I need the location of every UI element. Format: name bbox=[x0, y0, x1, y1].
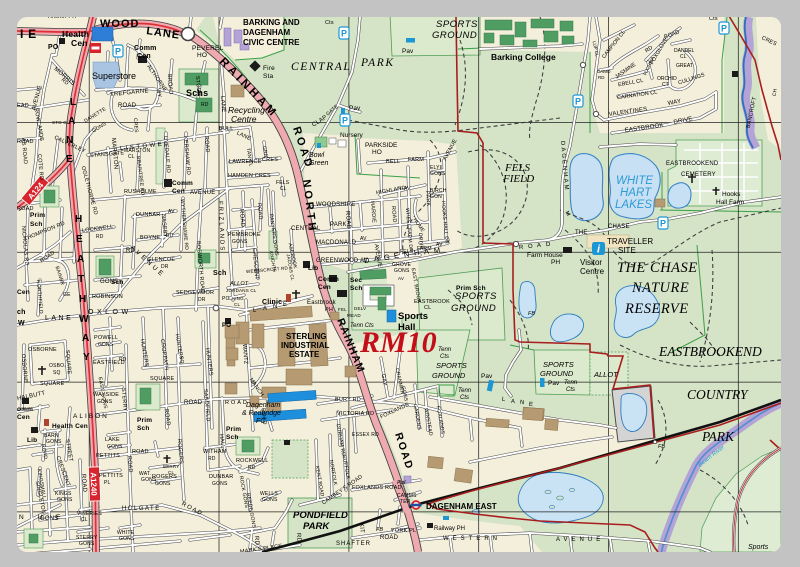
svg-text:DR: DR bbox=[198, 297, 206, 303]
svg-text:GONS: GONS bbox=[79, 541, 95, 547]
svg-text:A: A bbox=[77, 254, 84, 265]
svg-text:A1240: A1240 bbox=[89, 472, 99, 496]
svg-text:P: P bbox=[115, 47, 121, 57]
svg-text:GONS: GONS bbox=[46, 439, 62, 445]
svg-text:Hall Farm: Hall Farm bbox=[716, 199, 744, 206]
svg-text:GREAT: GREAT bbox=[676, 63, 693, 69]
svg-text:HO: HO bbox=[372, 149, 382, 156]
svg-text:CL: CL bbox=[424, 305, 431, 311]
svg-text:MACDONALD: MACDONALD bbox=[316, 240, 357, 246]
svg-text:MEAD: MEAD bbox=[347, 313, 361, 318]
svg-text:CENTRAL: CENTRAL bbox=[291, 226, 321, 232]
svg-text:TRAVELLER: TRAVELLER bbox=[607, 237, 653, 246]
svg-text:SITE: SITE bbox=[618, 246, 636, 255]
svg-text:Y: Y bbox=[83, 352, 90, 363]
svg-text:CAMO: CAMO bbox=[597, 69, 611, 74]
svg-text:LAWRENCE: LAWRENCE bbox=[229, 159, 262, 165]
svg-text:GONS: GONS bbox=[100, 279, 118, 285]
svg-text:RD: RD bbox=[166, 233, 174, 239]
svg-text:PARK: PARK bbox=[360, 57, 395, 69]
svg-text:EAD: EAD bbox=[17, 103, 29, 109]
svg-text:GROUND: GROUND bbox=[432, 371, 466, 380]
svg-text:BURY RD: BURY RD bbox=[335, 397, 361, 403]
svg-text:SQUARE: SQUARE bbox=[150, 376, 175, 382]
svg-text:T: T bbox=[78, 274, 84, 285]
svg-text:WHITE: WHITE bbox=[616, 175, 653, 187]
svg-text:VICTORIA RD: VICTORIA RD bbox=[337, 411, 374, 417]
svg-text:Nursery: Nursery bbox=[340, 132, 364, 139]
svg-text:P: P bbox=[341, 29, 347, 39]
svg-text:RD: RD bbox=[248, 465, 256, 471]
svg-text:Lib: Lib bbox=[27, 437, 37, 444]
svg-text:Tenn Cts: Tenn Cts bbox=[350, 323, 374, 329]
svg-text:PO: PO bbox=[222, 323, 231, 329]
svg-text:E: E bbox=[76, 234, 83, 245]
svg-text:AV: AV bbox=[168, 209, 175, 215]
svg-text:SEDGEMOOR: SEDGEMOOR bbox=[176, 290, 214, 296]
svg-text:Pav: Pav bbox=[548, 380, 560, 387]
svg-text:NATURE: NATURE bbox=[631, 280, 689, 296]
svg-text:Centre: Centre bbox=[580, 267, 605, 276]
svg-text:DR: DR bbox=[161, 264, 169, 270]
svg-text:RUSHOLME: RUSHOLME bbox=[124, 189, 157, 195]
svg-text:O: O bbox=[528, 244, 534, 250]
svg-text:BELL: BELL bbox=[386, 159, 400, 165]
svg-text:PEMBROKE: PEMBROKE bbox=[228, 232, 261, 238]
svg-text:CL: CL bbox=[280, 186, 287, 192]
svg-text:LAKES: LAKES bbox=[615, 199, 652, 211]
svg-text:Clinic: Clinic bbox=[262, 299, 282, 306]
svg-text:BULL: BULL bbox=[219, 126, 234, 132]
svg-text:Pol: Pol bbox=[397, 480, 406, 486]
svg-text:HAMDEN CRES: HAMDEN CRES bbox=[228, 173, 271, 179]
svg-text:ESTATE: ESTATE bbox=[289, 350, 320, 359]
svg-text:omm: omm bbox=[17, 406, 33, 413]
svg-text:RD: RD bbox=[253, 536, 260, 546]
svg-text:ROAD: ROAD bbox=[380, 535, 399, 541]
svg-text:Sta: Sta bbox=[263, 73, 274, 80]
svg-text:PO: PO bbox=[48, 44, 59, 51]
svg-text:Pav: Pav bbox=[481, 373, 493, 380]
svg-text:AV: AV bbox=[404, 186, 411, 192]
svg-text:GONS: GONS bbox=[155, 481, 171, 487]
svg-text:GONS: GONS bbox=[107, 444, 123, 450]
svg-text:RD: RD bbox=[295, 533, 302, 543]
svg-text:Sch: Sch bbox=[213, 270, 226, 277]
svg-text:GON: GON bbox=[430, 194, 442, 200]
svg-text:GE: GE bbox=[63, 292, 71, 298]
svg-text:Superstore: Superstore bbox=[92, 71, 136, 81]
svg-text:A: A bbox=[82, 333, 89, 344]
svg-text:Tenn: Tenn bbox=[438, 347, 452, 353]
svg-text:GDNS: GDNS bbox=[97, 399, 113, 405]
svg-text:PH: PH bbox=[325, 307, 333, 313]
svg-text:KING: KING bbox=[232, 296, 244, 301]
svg-text:P: P bbox=[575, 97, 581, 107]
svg-text:WITHAM: WITHAM bbox=[203, 449, 227, 455]
svg-text:GROUND: GROUND bbox=[432, 30, 477, 41]
svg-text:THE: THE bbox=[575, 230, 588, 236]
svg-text:COUNTRY: COUNTRY bbox=[687, 387, 749, 402]
svg-text:ROAD: ROAD bbox=[132, 449, 149, 455]
svg-text:PONDFIELD: PONDFIELD bbox=[293, 510, 348, 521]
svg-text:FARM: FARM bbox=[408, 157, 424, 163]
svg-text:Comm: Comm bbox=[318, 276, 339, 283]
svg-text:DUNBAR: DUNBAR bbox=[209, 474, 233, 480]
svg-text:ESSEX RD: ESSEX RD bbox=[352, 432, 379, 438]
svg-text:Visitor: Visitor bbox=[580, 258, 602, 267]
svg-text:A: A bbox=[537, 243, 542, 249]
svg-text:PETTITS: PETTITS bbox=[96, 453, 120, 459]
svg-text:Sch: Sch bbox=[226, 434, 239, 441]
svg-text:OSBO.: OSBO. bbox=[49, 363, 66, 369]
svg-text:Hooks: Hooks bbox=[722, 191, 741, 198]
svg-text:Cts: Cts bbox=[460, 395, 469, 401]
svg-text:WOODSHIRE: WOODSHIRE bbox=[316, 202, 355, 208]
svg-text:ch: ch bbox=[17, 309, 26, 316]
svg-text:DELV: DELV bbox=[354, 306, 366, 311]
svg-text:GONS: GONS bbox=[40, 516, 58, 522]
svg-text:Cen: Cen bbox=[71, 38, 88, 48]
svg-text:KIT: KIT bbox=[358, 523, 365, 534]
svg-text:EASTBROOKEND: EASTBROOKEND bbox=[666, 161, 719, 167]
svg-text:ROAD: ROAD bbox=[225, 400, 249, 406]
svg-text:FOXLANDS ROAD: FOXLANDS ROAD bbox=[352, 485, 402, 491]
svg-text:CL: CL bbox=[234, 302, 240, 307]
svg-text:Cts: Cts bbox=[440, 354, 449, 360]
svg-text:SQUARE: SQUARE bbox=[40, 381, 65, 387]
svg-text:A: A bbox=[511, 399, 516, 405]
svg-text:INDUSTRIAL: INDUSTRIAL bbox=[281, 341, 330, 350]
svg-text:L: L bbox=[70, 97, 76, 108]
svg-text:DAGENHAM EAST: DAGENHAM EAST bbox=[426, 502, 497, 511]
svg-text:Cen: Cen bbox=[17, 414, 30, 421]
svg-text:Comm: Comm bbox=[172, 180, 193, 187]
svg-text:SHAFTER: SHAFTER bbox=[336, 541, 371, 547]
svg-text:CHASE: CHASE bbox=[608, 224, 630, 230]
svg-text:BOYNE: BOYNE bbox=[140, 235, 160, 241]
svg-text:DUNBAR: DUNBAR bbox=[136, 212, 160, 218]
svg-text:WESTERN: WESTERN bbox=[443, 536, 501, 542]
svg-text:SPORTS: SPORTS bbox=[436, 19, 478, 30]
svg-text:GONS: GONS bbox=[57, 497, 73, 503]
svg-text:Prim: Prim bbox=[30, 212, 45, 219]
svg-text:ROAD: ROAD bbox=[184, 400, 203, 406]
svg-text:CT: CT bbox=[662, 82, 669, 88]
svg-text:L: L bbox=[253, 308, 257, 314]
svg-text:FIELD: FIELD bbox=[502, 173, 534, 185]
svg-text:RD: RD bbox=[208, 456, 216, 462]
svg-text:Cts: Cts bbox=[325, 20, 334, 26]
svg-text:GONS: GONS bbox=[119, 536, 135, 542]
svg-text:Cen: Cen bbox=[17, 289, 30, 296]
svg-text:ROAD: ROAD bbox=[118, 103, 137, 109]
svg-text:Tenn: Tenn bbox=[564, 380, 578, 386]
svg-text:RD: RD bbox=[598, 75, 605, 80]
svg-text:Cen: Cen bbox=[137, 53, 151, 60]
svg-text:LANE: LANE bbox=[45, 315, 73, 322]
svg-text:CL: CL bbox=[168, 470, 174, 475]
svg-text:FB: FB bbox=[658, 444, 665, 450]
svg-text:LAKE: LAKE bbox=[105, 437, 120, 443]
svg-text:CEMETERY: CEMETERY bbox=[681, 172, 716, 178]
svg-text:Lib: Lib bbox=[308, 265, 318, 272]
svg-text:E: E bbox=[66, 154, 73, 165]
svg-text:H: H bbox=[79, 294, 86, 305]
svg-text:Cts: Cts bbox=[566, 387, 575, 393]
svg-text:Hall: Hall bbox=[398, 322, 415, 333]
svg-text:AVENUE: AVENUE bbox=[556, 537, 604, 543]
svg-text:ALIBON: ALIBON bbox=[73, 413, 109, 420]
svg-text:PETTITS: PETTITS bbox=[99, 473, 123, 479]
svg-text:BARKING AND: BARKING AND bbox=[243, 18, 300, 27]
svg-text:H: H bbox=[75, 214, 82, 225]
svg-text:Farm House: Farm House bbox=[527, 252, 563, 259]
svg-text:PARK: PARK bbox=[701, 429, 735, 444]
svg-text:PL: PL bbox=[104, 480, 111, 486]
svg-text:AV: AV bbox=[360, 236, 367, 242]
svg-text:POWELL: POWELL bbox=[94, 335, 118, 341]
svg-text:PARK: PARK bbox=[303, 521, 330, 532]
svg-text:Sports: Sports bbox=[398, 311, 428, 322]
svg-text:SPORTS: SPORTS bbox=[436, 361, 467, 370]
svg-text:YORK PL: YORK PL bbox=[391, 528, 416, 534]
svg-text:Sch: Sch bbox=[137, 425, 150, 432]
svg-text:HART: HART bbox=[620, 187, 652, 199]
svg-text:FB: FB bbox=[376, 527, 383, 533]
svg-text:AV: AV bbox=[398, 276, 404, 281]
svg-text:ROBINSON: ROBINSON bbox=[92, 294, 123, 300]
svg-text:Prim Sch: Prim Sch bbox=[456, 285, 486, 292]
svg-text:GONS: GONS bbox=[232, 239, 248, 245]
svg-text:GONS: GONS bbox=[394, 268, 410, 274]
svg-text:ALLOT: ALLOT bbox=[229, 281, 249, 287]
svg-text:M: M bbox=[433, 245, 441, 255]
svg-text:GONS: GONS bbox=[430, 171, 446, 177]
svg-text:G: G bbox=[383, 252, 390, 262]
svg-text:Barking College: Barking College bbox=[491, 52, 556, 62]
svg-text:TER: TER bbox=[400, 499, 411, 505]
svg-text:HOLGATE: HOLGATE bbox=[122, 506, 161, 512]
svg-text:PH: PH bbox=[551, 259, 560, 266]
svg-text:Cen: Cen bbox=[318, 284, 331, 291]
svg-text:GROUND: GROUND bbox=[540, 369, 574, 378]
svg-text:N: N bbox=[520, 400, 525, 406]
svg-text:GLENCOE: GLENCOE bbox=[147, 257, 175, 263]
svg-text:SPORTS: SPORTS bbox=[543, 360, 574, 369]
svg-text:Cen: Cen bbox=[172, 188, 185, 195]
svg-text:SQ: SQ bbox=[53, 370, 61, 376]
svg-text:RD: RD bbox=[96, 234, 104, 240]
svg-text:OXLOW: OXLOW bbox=[88, 309, 132, 316]
svg-text:WAYSIDE: WAYSIDE bbox=[93, 392, 119, 398]
svg-text:GONS: GONS bbox=[262, 497, 278, 503]
svg-text:DAGENHAM: DAGENHAM bbox=[243, 28, 290, 37]
svg-text:WOOD: WOOD bbox=[100, 18, 139, 30]
svg-text:Comm: Comm bbox=[134, 45, 157, 52]
svg-text:CIVIC CENTRE: CIVIC CENTRE bbox=[243, 38, 300, 47]
svg-text:CL: CL bbox=[680, 54, 687, 60]
svg-text:THE CHASE: THE CHASE bbox=[617, 260, 698, 276]
svg-text:Prim: Prim bbox=[137, 417, 152, 424]
svg-text:CL: CL bbox=[81, 517, 88, 523]
svg-text:RD: RD bbox=[201, 102, 209, 108]
svg-text:Sch: Sch bbox=[30, 221, 43, 228]
svg-text:RD: RD bbox=[119, 357, 127, 363]
svg-text:A: A bbox=[263, 306, 267, 312]
svg-text:OSBORNE: OSBORNE bbox=[28, 347, 57, 353]
svg-text:CL: CL bbox=[128, 154, 135, 160]
svg-text:FB: FB bbox=[528, 311, 535, 317]
svg-text:W: W bbox=[18, 320, 25, 327]
svg-text:PARK: PARK bbox=[330, 222, 347, 228]
svg-text:Sec: Sec bbox=[350, 277, 362, 284]
svg-text:GONS: GONS bbox=[212, 481, 228, 487]
svg-text:Fire: Fire bbox=[263, 65, 275, 72]
svg-text:E: E bbox=[283, 302, 287, 308]
svg-text:PEVEREL: PEVEREL bbox=[192, 45, 224, 52]
svg-text:CENTRAL: CENTRAL bbox=[291, 61, 351, 73]
svg-text:Centre: Centre bbox=[231, 114, 257, 124]
svg-text:RESERVE: RESERVE bbox=[624, 301, 689, 317]
svg-text:RD: RD bbox=[126, 248, 136, 254]
svg-text:AVENUE: AVENUE bbox=[190, 190, 215, 196]
svg-text:Schs: Schs bbox=[186, 88, 208, 98]
svg-text:CRES: CRES bbox=[262, 157, 278, 163]
svg-text:FEL: FEL bbox=[338, 307, 347, 312]
svg-text:Health Cen: Health Cen bbox=[52, 423, 88, 430]
svg-text:Prim: Prim bbox=[226, 426, 241, 433]
svg-text:GROUND: GROUND bbox=[451, 303, 496, 314]
svg-text:Eastbrook: Eastbrook bbox=[307, 300, 337, 306]
svg-text:EASTBROOKEND: EASTBROOKEND bbox=[658, 344, 762, 359]
svg-text:Sch: Sch bbox=[350, 285, 363, 292]
svg-text:HO: HO bbox=[197, 52, 207, 59]
svg-text:GREENWOOD AV: GREENWOOD AV bbox=[316, 258, 368, 264]
svg-text:P: P bbox=[721, 24, 727, 34]
svg-text:E: E bbox=[529, 402, 534, 408]
svg-text:GDNS: GDNS bbox=[98, 342, 114, 348]
svg-text:Tenn: Tenn bbox=[458, 388, 472, 394]
svg-text:STO CL: STO CL bbox=[52, 120, 70, 125]
svg-text:JORDANS CL: JORDANS CL bbox=[226, 288, 257, 293]
svg-text:I E: I E bbox=[20, 27, 36, 41]
svg-text:Sports: Sports bbox=[748, 544, 769, 551]
svg-text:STERLING: STERLING bbox=[286, 332, 326, 341]
svg-text:ROCKWELL: ROCKWELL bbox=[236, 458, 268, 464]
svg-text:BERRY: BERRY bbox=[163, 464, 179, 469]
svg-text:SPORTS: SPORTS bbox=[455, 291, 497, 302]
svg-text:P: P bbox=[342, 116, 348, 126]
svg-text:Pav: Pav bbox=[402, 48, 414, 55]
svg-text:PARKSIDE: PARKSIDE bbox=[365, 142, 398, 149]
svg-text:ALLOT: ALLOT bbox=[593, 370, 619, 379]
svg-text:Pav: Pav bbox=[349, 105, 361, 112]
svg-text:PO: PO bbox=[222, 296, 230, 302]
svg-text:P: P bbox=[660, 219, 666, 229]
svg-text:Railway PH: Railway PH bbox=[434, 526, 465, 532]
